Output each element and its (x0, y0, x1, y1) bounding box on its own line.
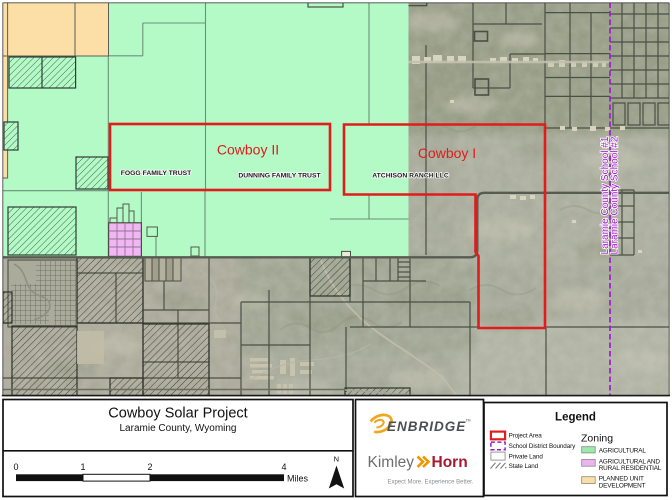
svg-text:2: 2 (147, 462, 152, 472)
svg-text:Miles: Miles (287, 474, 309, 484)
svg-text:Cowboy II: Cowboy II (217, 142, 279, 158)
svg-text:Cowboy I: Cowboy I (418, 145, 476, 161)
svg-text:Horn: Horn (432, 454, 468, 471)
svg-text:Expect More. Experience Better: Expect More. Experience Better. (387, 480, 473, 486)
svg-text:AGRICULTURAL: AGRICULTURAL (599, 447, 647, 454)
svg-text:RURAL RESIDENTIAL: RURAL RESIDENTIAL (599, 465, 662, 472)
svg-text:Laramie County, Wyoming: Laramie County, Wyoming (120, 423, 237, 434)
svg-text:N: N (334, 455, 339, 464)
svg-text:ATCHISON RANCH LLC: ATCHISON RANCH LLC (372, 173, 449, 180)
svg-text:School District Boundary: School District Boundary (509, 443, 576, 450)
svg-text:Project Area: Project Area (509, 433, 543, 440)
svg-text:FOGG FAMILY TRUST: FOGG FAMILY TRUST (121, 170, 192, 177)
svg-text:DEVELOPMENT: DEVELOPMENT (599, 482, 646, 489)
svg-text:Zoning: Zoning (581, 433, 613, 445)
svg-text:0: 0 (13, 462, 18, 472)
svg-text:Laramie County School #2: Laramie County School #2 (610, 136, 621, 254)
svg-text:Cowboy Solar Project: Cowboy Solar Project (108, 405, 247, 421)
svg-text:Legend: Legend (555, 412, 596, 424)
svg-text:State Land: State Land (509, 463, 539, 470)
svg-text:DUNNING FAMILY TRUST: DUNNING FAMILY TRUST (238, 173, 321, 180)
svg-text:Private Land: Private Land (509, 453, 544, 460)
svg-text:PLANNED UNIT: PLANNED UNIT (599, 475, 644, 482)
svg-text:Kimley: Kimley (368, 454, 415, 471)
svg-text:TM: TM (466, 419, 471, 423)
svg-text:4: 4 (281, 462, 286, 472)
svg-text:ENBRIDGE: ENBRIDGE (387, 419, 466, 434)
svg-text:1: 1 (80, 462, 85, 472)
